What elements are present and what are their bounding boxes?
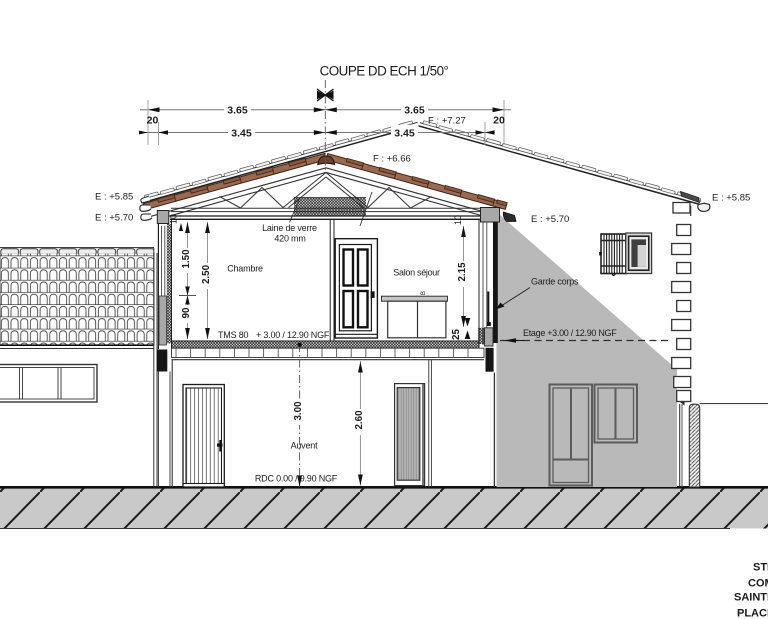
svg-text:F : +7.27: F : +7.27	[428, 116, 466, 127]
svg-text:2.60: 2.60	[354, 410, 365, 430]
svg-text:2.15: 2.15	[457, 262, 468, 282]
svg-text:3.45: 3.45	[394, 128, 415, 140]
svg-text:Chambre: Chambre	[227, 264, 263, 274]
svg-text:90: 90	[181, 307, 192, 318]
svg-text:Etage +3.00 / 12.90 NGF: Etage +3.00 / 12.90 NGF	[523, 328, 617, 338]
svg-text:+ 3.00 / 12.90 NGF: + 3.00 / 12.90 NGF	[256, 330, 330, 340]
svg-text:TMS 80: TMS 80	[218, 330, 249, 340]
svg-text:2.50: 2.50	[201, 264, 212, 284]
svg-text:Salon séjour: Salon séjour	[393, 268, 440, 278]
svg-text:RDC 0.00 / 9.90 NGF: RDC 0.00 / 9.90 NGF	[255, 474, 338, 484]
svg-text:Laine de verre: Laine de verre	[262, 223, 317, 233]
svg-text:SAINTE: SAINTE	[734, 592, 768, 604]
svg-text:20: 20	[147, 115, 159, 127]
svg-text:3.65: 3.65	[227, 105, 248, 117]
svg-text:20: 20	[493, 115, 505, 127]
svg-text:COUPE DD ECH 1/50°: COUPE DD ECH 1/50°	[320, 64, 449, 79]
svg-text:25: 25	[451, 329, 462, 340]
svg-text:3.00: 3.00	[293, 401, 304, 421]
svg-text:Garde corps: Garde corps	[531, 277, 579, 287]
svg-text:E : +5.85: E : +5.85	[712, 193, 750, 204]
svg-text:E : +5.70: E : +5.70	[531, 214, 569, 225]
svg-text:F : +6.66: F : +6.66	[373, 154, 411, 165]
svg-text:1.50: 1.50	[181, 249, 192, 269]
svg-text:E : +5.70: E : +5.70	[95, 213, 133, 224]
svg-text:420 mm: 420 mm	[274, 234, 305, 244]
svg-text:STEP: STEP	[753, 562, 768, 574]
svg-text:COMM: COMM	[748, 578, 768, 590]
svg-text:3.45: 3.45	[231, 128, 252, 140]
svg-text:Auvent: Auvent	[291, 441, 319, 451]
svg-text:B: B	[421, 291, 427, 295]
svg-text:E : +5.85: E : +5.85	[95, 192, 133, 203]
svg-text:PLACE G: PLACE G	[737, 608, 768, 619]
svg-text:10: 10	[453, 215, 463, 225]
svg-text:10: 10	[169, 214, 179, 224]
svg-text:3.65: 3.65	[404, 105, 425, 117]
